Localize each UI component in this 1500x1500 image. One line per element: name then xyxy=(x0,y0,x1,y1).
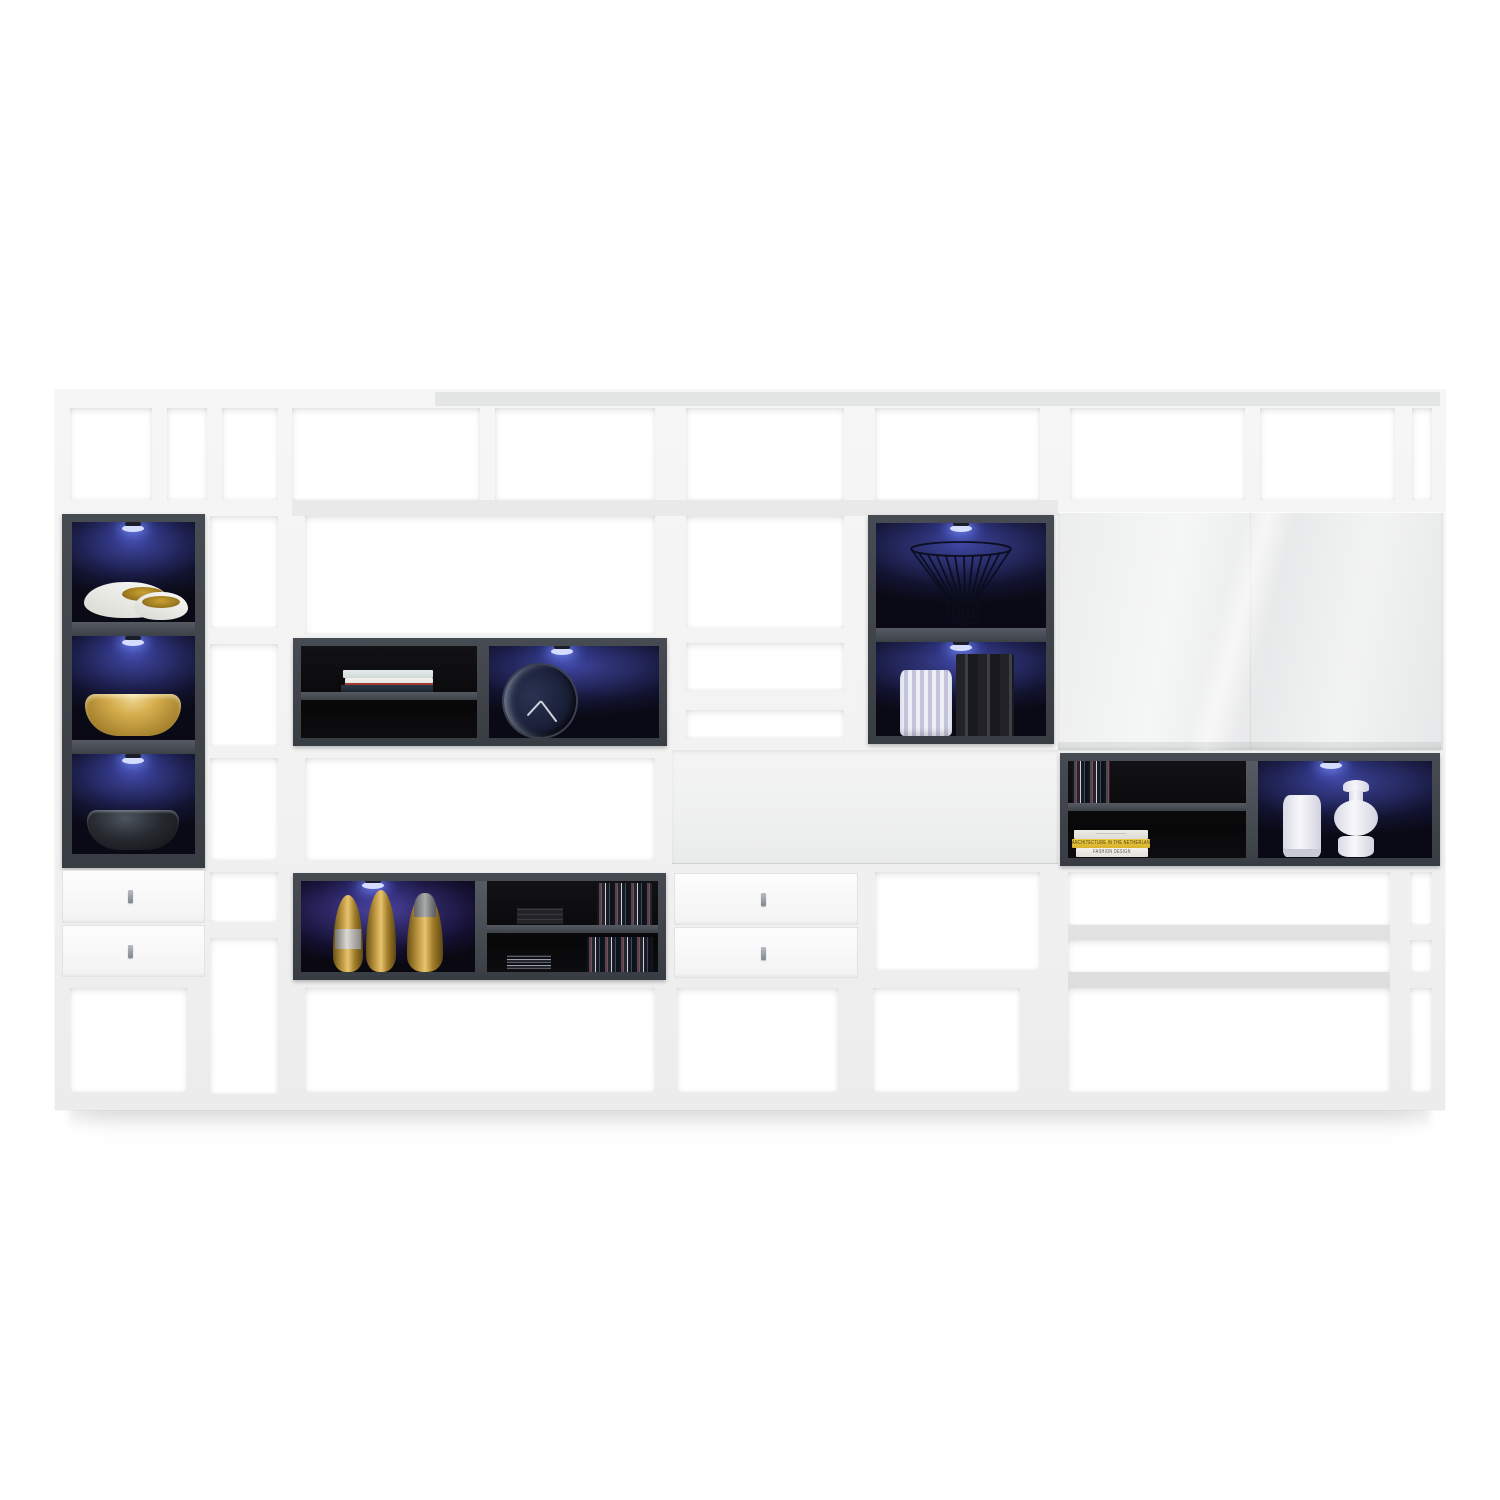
open-cell xyxy=(1410,940,1432,972)
led-spot xyxy=(950,644,972,651)
open-cell xyxy=(70,408,152,500)
box-cell-cd-shelves xyxy=(487,881,658,972)
led-spot xyxy=(122,639,144,646)
open-cell xyxy=(167,408,207,500)
open-cell xyxy=(1260,408,1395,500)
led-spot xyxy=(362,882,384,889)
gloss-reflection-shelf xyxy=(1068,925,1390,940)
led-spot xyxy=(122,525,144,532)
drawer-left-2 xyxy=(62,925,205,977)
open-cell xyxy=(210,938,278,1094)
led-spot xyxy=(950,525,972,532)
drawer-handle xyxy=(761,947,766,960)
vase-silver-band xyxy=(335,929,361,949)
decor-book-fashion: FASHION DESIGN xyxy=(1076,848,1148,857)
box-mid-shelf xyxy=(487,925,658,933)
decor-cd-row xyxy=(597,883,652,925)
flap-front-panel xyxy=(672,750,1058,864)
drawer-handle xyxy=(761,893,766,906)
right-display-box: ────────── ARCHITECTURE IN THE NETHERLAN… xyxy=(1060,753,1440,866)
open-cell xyxy=(677,988,838,1092)
open-cell xyxy=(1410,872,1432,925)
open-cell xyxy=(1068,872,1390,925)
decor-cd-row xyxy=(587,937,653,972)
decor-gold-bowl xyxy=(85,694,181,736)
box-mid-shelf xyxy=(301,692,477,700)
box-divider xyxy=(1246,761,1258,858)
display-cell-gold-bowl xyxy=(72,636,195,740)
gloss-sliding-door xyxy=(1058,512,1443,750)
open-cell xyxy=(210,872,278,922)
gloss-reflection-shelf xyxy=(292,500,1058,516)
decor-book xyxy=(345,678,433,685)
wall-unit: ────────── ARCHITECTURE IN THE NETHERLAN… xyxy=(55,390,1445,1110)
open-cell xyxy=(1068,940,1390,972)
drawer-handle xyxy=(128,890,133,903)
left-display-box xyxy=(62,514,205,868)
led-spot xyxy=(122,757,144,764)
decor-dark-books xyxy=(956,654,1014,736)
decor-book-white: ────────── xyxy=(1074,830,1148,839)
open-cell xyxy=(686,710,844,738)
open-cell xyxy=(686,408,844,500)
decor-anthracite-bowl xyxy=(87,810,179,850)
box-cell-white-vases xyxy=(1258,761,1432,858)
decor-box-stack xyxy=(517,908,563,924)
box-divider xyxy=(475,881,487,972)
drawer-center-1 xyxy=(674,873,858,925)
display-cell-white-bowls xyxy=(72,522,195,622)
decor-cd-row xyxy=(1072,761,1110,803)
box-cell-vase-books xyxy=(876,642,1046,736)
clock-minute-hand xyxy=(540,700,557,722)
decor-white-vase-curvy xyxy=(1333,780,1379,857)
led-spot xyxy=(1320,762,1342,769)
bottom-display-box xyxy=(293,873,666,980)
open-cell xyxy=(70,988,187,1092)
display-shelf xyxy=(876,628,1046,642)
open-cell xyxy=(210,644,278,746)
display-cell-dark-bowl xyxy=(72,754,195,854)
product-photo-canvas: ────────── ARCHITECTURE IN THE NETHERLAN… xyxy=(0,0,1500,1500)
open-cell xyxy=(495,408,655,500)
open-cell xyxy=(292,408,480,500)
open-cell xyxy=(210,758,278,860)
decor-clock xyxy=(504,665,576,737)
open-cell xyxy=(305,988,655,1092)
decor-book xyxy=(343,670,433,678)
open-cell xyxy=(686,516,844,628)
open-cell xyxy=(222,408,278,500)
open-cell xyxy=(1412,408,1432,500)
open-cell xyxy=(305,516,655,634)
decor-fluted-vase xyxy=(900,670,952,736)
drawer-left-1 xyxy=(62,870,205,923)
vase-body xyxy=(1334,800,1378,836)
box-cell-wire-basket xyxy=(876,523,1046,628)
open-cell xyxy=(686,643,844,690)
basket-display-box xyxy=(868,515,1054,744)
decor-white-vase-round xyxy=(1283,795,1321,857)
bowl-gold-interior xyxy=(142,596,180,608)
box-cell-clock xyxy=(489,646,659,738)
drawer-center-2 xyxy=(674,927,858,978)
open-cell xyxy=(875,872,1040,970)
gloss-reflection-top-beam xyxy=(435,392,1440,406)
decor-white-bowl-small xyxy=(134,592,188,620)
center-display-box xyxy=(293,638,667,746)
open-cell xyxy=(1410,988,1432,1092)
decor-cd-stack xyxy=(507,955,551,971)
decor-book xyxy=(341,685,433,692)
open-cell xyxy=(875,408,1040,500)
gloss-reflection-shelf xyxy=(1058,742,1441,751)
floor-shadow xyxy=(70,1108,1430,1130)
vase-foot xyxy=(1338,836,1374,857)
clock-hour-hand xyxy=(527,700,542,716)
open-cell xyxy=(305,758,655,860)
display-shelf xyxy=(72,740,195,754)
display-shelf xyxy=(72,622,195,636)
vase-glass-top xyxy=(414,893,436,917)
box-cell-books xyxy=(301,646,477,738)
open-cell xyxy=(1068,988,1390,1092)
open-cell xyxy=(1070,408,1245,500)
drawer-handle xyxy=(128,945,133,958)
open-cell xyxy=(210,516,278,628)
decor-wire-basket xyxy=(904,539,1018,625)
box-mid-shelf xyxy=(1068,803,1246,811)
led-spot xyxy=(551,648,573,655)
decor-book-yellow: ARCHITECTURE IN THE NETHERLANDS xyxy=(1072,839,1150,848)
gloss-reflection-shelf xyxy=(1068,972,1390,988)
box-cell-cds-books: ────────── ARCHITECTURE IN THE NETHERLAN… xyxy=(1068,761,1246,858)
open-cell xyxy=(873,988,1020,1092)
decor-gold-vase-2 xyxy=(366,890,396,972)
box-cell-gold-vases xyxy=(301,881,475,972)
